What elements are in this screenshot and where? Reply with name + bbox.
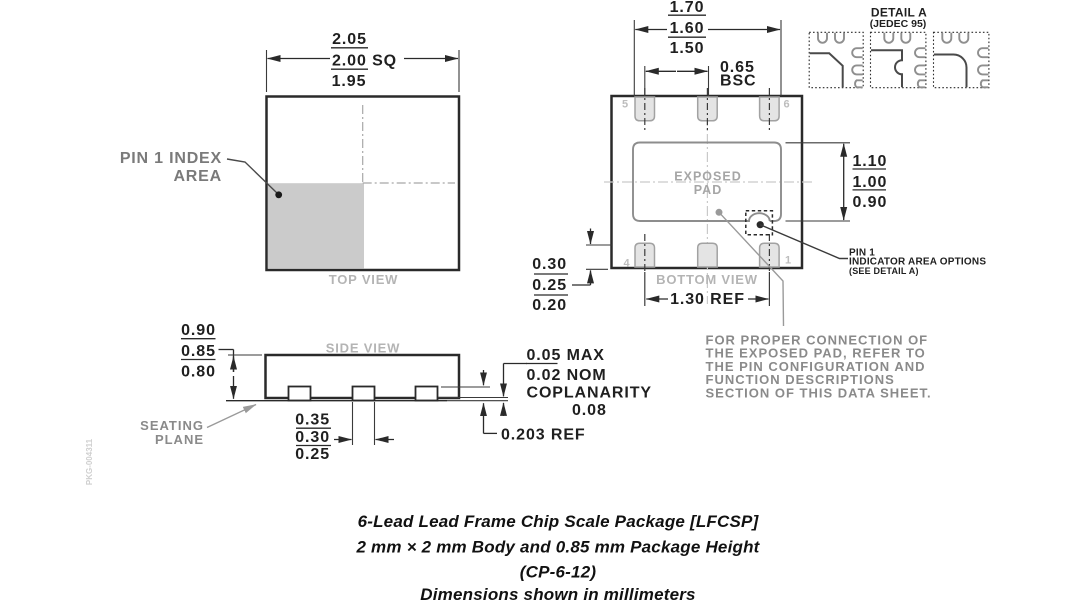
svg-text:BSC: BSC <box>720 73 756 90</box>
svg-text:0.25: 0.25 <box>295 446 330 463</box>
svg-text:0.203 REF: 0.203 REF <box>501 426 586 443</box>
svg-text:1.10: 1.10 <box>853 153 888 170</box>
svg-text:0.08: 0.08 <box>572 402 607 419</box>
svg-text:(SEE DETAIL A): (SEE DETAIL A) <box>849 266 919 276</box>
svg-text:SECTION OF THIS DATA SHEET.: SECTION OF THIS DATA SHEET. <box>706 385 932 400</box>
svg-text:2.05: 2.05 <box>332 31 367 48</box>
svg-text:0.25: 0.25 <box>532 277 567 294</box>
svg-text:PKG-004311: PKG-004311 <box>85 438 94 485</box>
svg-text:0.90: 0.90 <box>181 322 216 339</box>
svg-text:0.85: 0.85 <box>181 343 216 360</box>
svg-text:0.05 MAX: 0.05 MAX <box>527 347 605 364</box>
svg-text:(JEDEC 95): (JEDEC 95) <box>870 18 927 30</box>
svg-text:BOTTOM VIEW: BOTTOM VIEW <box>656 272 758 287</box>
svg-text:0.90: 0.90 <box>853 194 888 211</box>
svg-text:1.60: 1.60 <box>670 20 705 37</box>
svg-text:SIDE VIEW: SIDE VIEW <box>326 341 400 356</box>
svg-text:0.20: 0.20 <box>532 297 567 314</box>
svg-text:PAD: PAD <box>694 183 722 197</box>
svg-text:1.95: 1.95 <box>332 73 367 90</box>
svg-text:PIN 1 INDEX: PIN 1 INDEX <box>120 150 222 167</box>
svg-text:6: 6 <box>784 99 790 111</box>
svg-text:0.30: 0.30 <box>532 256 567 273</box>
svg-text:1.70: 1.70 <box>670 0 705 16</box>
svg-text:1.30 REF: 1.30 REF <box>670 291 745 308</box>
svg-text:EXPOSED: EXPOSED <box>674 170 741 184</box>
svg-text:1.50: 1.50 <box>670 40 705 57</box>
svg-text:(CP-6-12): (CP-6-12) <box>520 563 597 582</box>
svg-text:2.00 SQ: 2.00 SQ <box>332 53 397 70</box>
svg-text:0.02 NOM: 0.02 NOM <box>527 367 607 384</box>
svg-text:0.35: 0.35 <box>295 412 330 429</box>
svg-text:COPLANARITY: COPLANARITY <box>527 385 652 402</box>
svg-text:TOP VIEW: TOP VIEW <box>329 272 399 287</box>
svg-text:6-Lead Lead Frame Chip Scale P: 6-Lead Lead Frame Chip Scale Package [LF… <box>358 512 760 531</box>
svg-text:4: 4 <box>624 258 631 270</box>
svg-text:PLANE: PLANE <box>155 432 204 447</box>
svg-text:SEATING: SEATING <box>140 418 204 433</box>
svg-text:2 mm × 2 mm Body and 0.85 mm P: 2 mm × 2 mm Body and 0.85 mm Package Hei… <box>355 537 760 556</box>
svg-text:1.00: 1.00 <box>853 174 888 191</box>
svg-text:AREA: AREA <box>173 168 222 185</box>
svg-text:1: 1 <box>785 255 791 267</box>
svg-text:5: 5 <box>622 99 628 111</box>
svg-text:0.80: 0.80 <box>181 363 216 380</box>
svg-text:Dimensions shown in millimeter: Dimensions shown in millimeters <box>420 585 695 600</box>
svg-text:0.30: 0.30 <box>295 429 330 446</box>
